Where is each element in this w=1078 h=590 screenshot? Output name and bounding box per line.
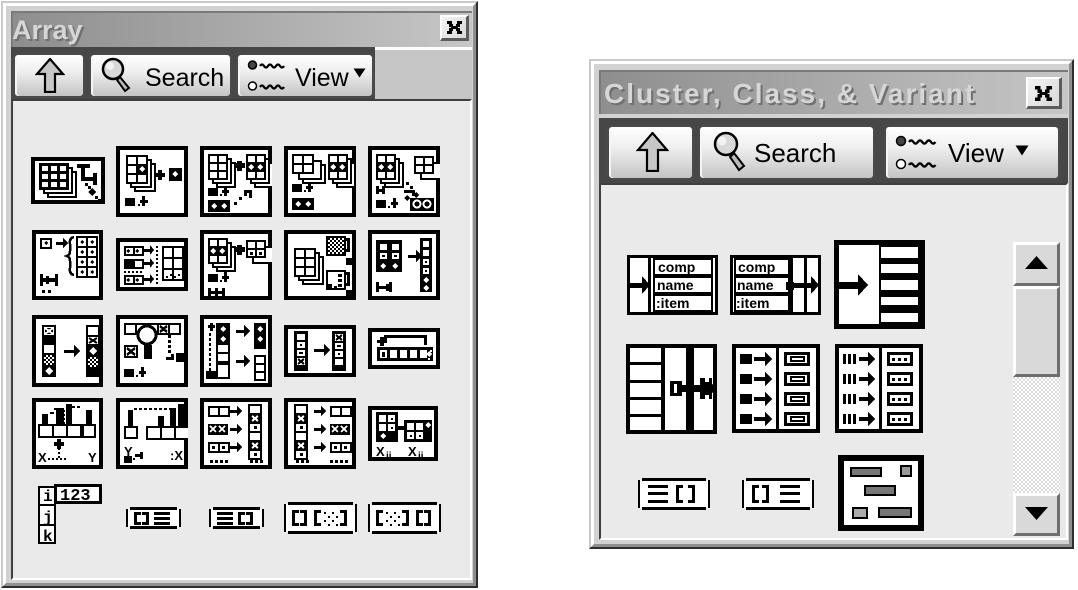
svg-text:name: name: [657, 277, 694, 293]
svg-text::X: :X: [170, 448, 183, 463]
svg-text:X: X: [376, 444, 385, 459]
svg-text:X: X: [38, 450, 47, 465]
svg-text:Y: Y: [88, 450, 97, 465]
svg-text:ji: ji: [417, 451, 424, 461]
svg-text:name: name: [737, 277, 774, 293]
svg-text:ij: ij: [386, 451, 392, 461]
svg-text:j: j: [43, 509, 53, 527]
svg-text::item: :item: [736, 295, 769, 311]
svg-text:i: i: [43, 488, 53, 506]
svg-text:k: k: [43, 528, 53, 546]
svg-text:comp: comp: [738, 259, 775, 275]
svg-text::item: :item: [656, 295, 689, 311]
svg-text:X: X: [408, 444, 417, 459]
svg-text:comp: comp: [658, 259, 695, 275]
svg-text:123: 123: [60, 487, 91, 506]
